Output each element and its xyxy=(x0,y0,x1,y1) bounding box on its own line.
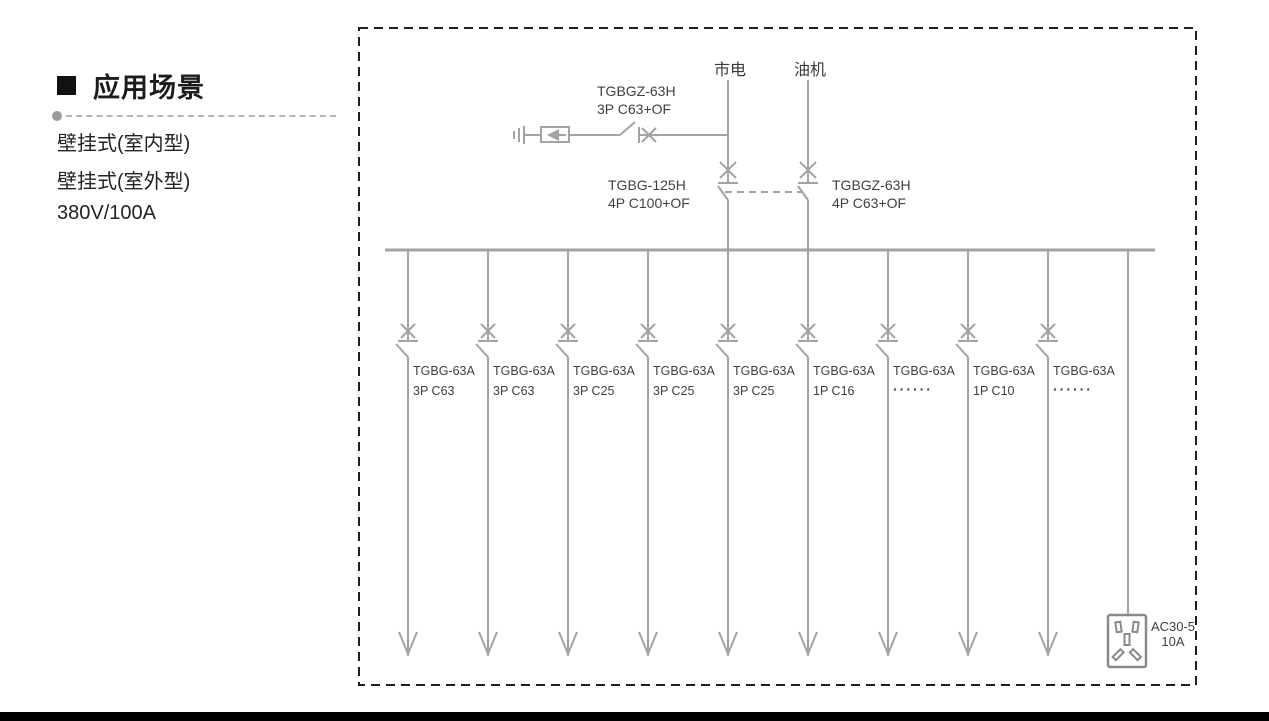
page: 应用场景 壁挂式(室内型) 壁挂式(室外型) 380V/100A xyxy=(0,0,1269,721)
branch-breaker-symbol xyxy=(396,250,418,357)
mains-breaker-model: TGBG-125H xyxy=(608,177,690,195)
generator-breaker-spec: 4P C63+OF xyxy=(832,195,911,213)
mains-breaker-spec: 4P C100+OF xyxy=(608,195,690,213)
branch-circuit: TGBG-63A 1P C10 xyxy=(948,250,988,660)
ground-icon xyxy=(514,126,541,144)
section-title: 应用场景 xyxy=(93,66,205,105)
branch-breaker-symbol xyxy=(796,250,818,357)
divider-dot-icon xyxy=(52,111,62,121)
branch-linework xyxy=(468,250,508,660)
branch-circuit: TGBG-63A 3P C25 xyxy=(548,250,588,660)
branch-linework xyxy=(868,250,908,660)
branch-circuit: TGBG-63A 3P C63 xyxy=(388,250,428,660)
branch-circuit: TGBG-63A ······ xyxy=(1028,250,1068,660)
branch-circuit: TGBG-63A 3P C63 xyxy=(468,250,508,660)
spd-branch-breaker-symbol xyxy=(569,122,728,143)
section-title-row: 应用场景 xyxy=(57,66,205,105)
socket-icon xyxy=(1108,615,1146,667)
branch-linework xyxy=(1028,250,1068,660)
spd-breaker-spec: 3P C63+OF xyxy=(597,101,676,119)
branch-model: TGBG-63A xyxy=(653,364,715,378)
branch-breaker-symbol xyxy=(956,250,978,357)
left-panel: 应用场景 壁挂式(室内型) 壁挂式(室外型) 380V/100A xyxy=(0,0,350,700)
socket-model: AC30-5 xyxy=(1148,619,1198,634)
generator-source-label: 油机 xyxy=(780,56,840,80)
mains-source-label: 市电 xyxy=(700,56,760,80)
dashed-divider xyxy=(52,110,292,122)
branch-linework xyxy=(628,250,668,660)
branch-spec: ······ xyxy=(893,381,933,397)
branch-breaker-symbol xyxy=(476,250,498,357)
generator-breaker-model: TGBGZ-63H xyxy=(832,177,911,195)
branch-spec: 1P C16 xyxy=(813,384,854,398)
branch-breaker-symbol xyxy=(876,250,898,357)
branch-linework xyxy=(708,250,748,660)
branch-spec: ······ xyxy=(1053,381,1093,397)
mains-breaker-label: TGBG-125H 4P C100+OF xyxy=(608,177,690,212)
branch-model: TGBG-63A xyxy=(893,364,955,378)
branch-spec: 3P C25 xyxy=(653,384,694,398)
branch-breaker-symbol xyxy=(1036,250,1058,357)
branch-spec: 3P C25 xyxy=(573,384,614,398)
branch-breaker-symbol xyxy=(636,250,658,357)
divider-dashes xyxy=(66,115,336,117)
branch-circuit: TGBG-63A 1P C16 xyxy=(788,250,828,660)
feature-item-outdoor: 壁挂式(室外型) xyxy=(57,165,190,194)
branch-model: TGBG-63A xyxy=(413,364,475,378)
branch-model: TGBG-63A xyxy=(493,364,555,378)
branch-spec: 3P C63 xyxy=(413,384,454,398)
spd-breaker-label: TGBGZ-63H 3P C63+OF xyxy=(597,83,676,118)
branch-breaker-symbol xyxy=(556,250,578,357)
spd-icon xyxy=(541,127,569,142)
branch-circuit: TGBG-63A 3P C25 xyxy=(628,250,668,660)
branch-linework xyxy=(788,250,828,660)
branch-model: TGBG-63A xyxy=(973,364,1035,378)
branch-spec: 1P C10 xyxy=(973,384,1014,398)
generator-feeder xyxy=(798,80,818,250)
branch-model: TGBG-63A xyxy=(1053,364,1115,378)
socket-rating: 10A xyxy=(1148,634,1198,649)
socket-label: AC30-5 10A xyxy=(1148,619,1198,649)
feature-item-indoor: 壁挂式(室内型) xyxy=(57,127,190,156)
branch-model: TGBG-63A xyxy=(733,364,795,378)
mains-feeder xyxy=(718,80,738,250)
spd-breaker-model: TGBGZ-63H xyxy=(597,83,676,101)
branch-circuit: TGBG-63A 3P C25 xyxy=(708,250,748,660)
branch-circuit: TGBG-63A ······ xyxy=(868,250,908,660)
branch-linework xyxy=(388,250,428,660)
generator-breaker-label: TGBGZ-63H 4P C63+OF xyxy=(832,177,911,212)
branch-spec: 3P C25 xyxy=(733,384,774,398)
square-bullet-icon xyxy=(57,76,76,95)
bottom-accent-bar xyxy=(0,712,1269,721)
wiring-diagram: 市电 油机 TGBGZ-63H 3P C63+OF TGBG-125H 4P C… xyxy=(358,27,1197,686)
branch-breaker-symbol xyxy=(716,250,738,357)
branch-model: TGBG-63A xyxy=(813,364,875,378)
branch-model: TGBG-63A xyxy=(573,364,635,378)
feature-item-rating: 380V/100A xyxy=(57,202,156,225)
branch-linework xyxy=(948,250,988,660)
branch-linework xyxy=(548,250,588,660)
branch-spec: 3P C63 xyxy=(493,384,534,398)
